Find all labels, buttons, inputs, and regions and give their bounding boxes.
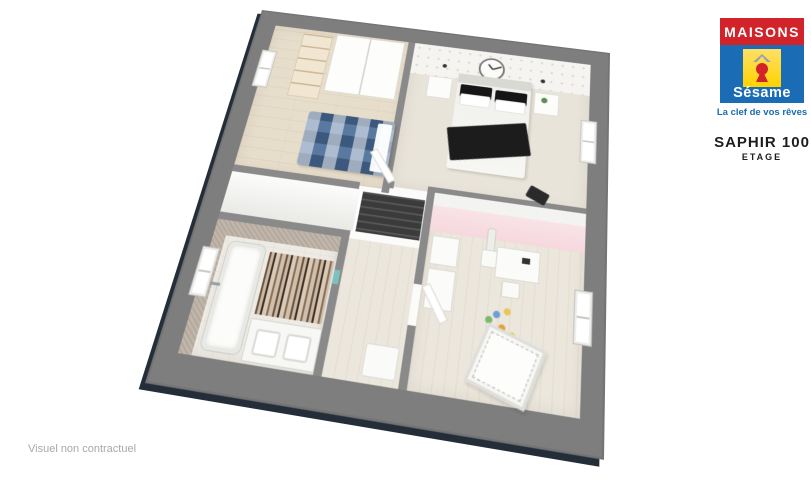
nightstand (533, 92, 559, 117)
nightstand (426, 75, 453, 99)
model-name: SAPHIR 100 (712, 134, 811, 151)
desk-item (522, 258, 530, 265)
pillow (459, 93, 490, 108)
model-level: ETAGE (712, 152, 811, 162)
keyhole-icon (756, 73, 768, 82)
kids-wardrobe (429, 235, 460, 268)
brand-tagline: La clef de vos rêves (712, 107, 811, 118)
kids-chair (501, 281, 521, 300)
logo-sesame-box: Sésame (720, 45, 804, 103)
model-block: SAPHIR 100 ETAGE (712, 134, 811, 162)
logo-maisons-text: MAISONS (724, 24, 800, 40)
throw-blanket (447, 123, 531, 160)
wardrobe (324, 35, 406, 100)
page: MAISONS Sésame La clef de vos rêves SAPH… (0, 0, 811, 480)
sink (282, 333, 313, 363)
logo-yellow-square (743, 49, 781, 87)
pillow (494, 99, 525, 115)
wall-lamp (541, 79, 546, 83)
logo-sesame-text: Sésame (720, 85, 804, 101)
window (573, 289, 594, 347)
roof-icon (753, 54, 771, 62)
kids-desk (494, 246, 540, 284)
striped-bath-rug (254, 252, 334, 325)
double-bed (446, 73, 532, 178)
stool (361, 343, 400, 382)
window (579, 120, 597, 165)
sink (251, 329, 282, 359)
kids-chair (480, 249, 498, 269)
clock-hand (492, 66, 502, 70)
disclaimer-text: Visuel non contractuel (28, 443, 136, 455)
floor-plan-render (145, 10, 610, 460)
brand-block: MAISONS Sésame La clef de vos rêves SAPH… (712, 18, 811, 162)
logo-maisons-banner: MAISONS (720, 18, 804, 45)
